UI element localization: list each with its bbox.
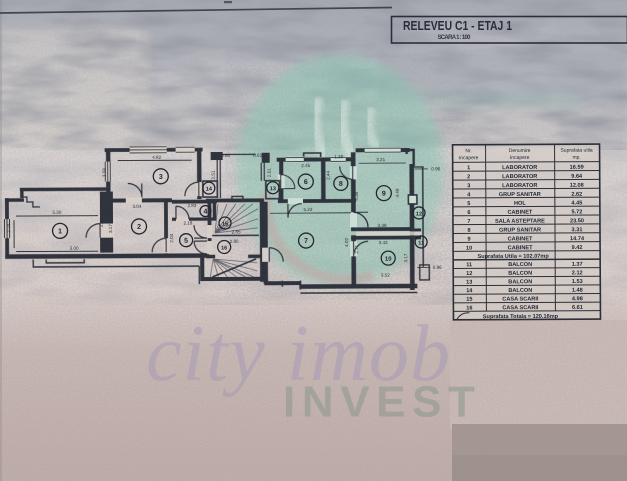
svg-text:3: 3 bbox=[467, 183, 470, 189]
svg-text:2.41: 2.41 bbox=[99, 218, 104, 227]
svg-text:12.08: 12.08 bbox=[570, 183, 584, 189]
svg-text:1.53: 1.53 bbox=[572, 279, 583, 285]
svg-text:4.49: 4.49 bbox=[395, 188, 400, 197]
svg-text:1: 1 bbox=[467, 165, 470, 171]
svg-text:3: 3 bbox=[159, 174, 163, 181]
svg-text:INVEST: INVEST bbox=[283, 378, 481, 427]
svg-text:CASA SCARII: CASA SCARII bbox=[502, 305, 539, 311]
svg-text:3.04: 3.04 bbox=[132, 204, 141, 209]
svg-text:9: 9 bbox=[382, 191, 386, 198]
svg-text:LABORATOR: LABORATOR bbox=[502, 165, 537, 171]
svg-text:Suprafata Totala = 120.16mp: Suprafata Totala = 120.16mp bbox=[483, 314, 559, 320]
svg-text:2.71: 2.71 bbox=[354, 244, 359, 253]
svg-text:6: 6 bbox=[304, 179, 308, 186]
svg-text:15: 15 bbox=[466, 297, 472, 303]
svg-text:Incapere: Incapere bbox=[510, 155, 530, 161]
svg-text:4.02: 4.02 bbox=[344, 237, 349, 246]
svg-text:3.52: 3.52 bbox=[381, 273, 390, 278]
svg-text:3.00: 3.00 bbox=[70, 246, 79, 251]
svg-text:5.22: 5.22 bbox=[303, 207, 312, 212]
svg-text:3.38: 3.38 bbox=[378, 223, 387, 228]
svg-text:16: 16 bbox=[221, 245, 227, 251]
svg-text:3.31: 3.31 bbox=[572, 227, 583, 233]
svg-text:2.45: 2.45 bbox=[301, 163, 310, 168]
svg-text:BALCON: BALCON bbox=[508, 288, 532, 294]
svg-text:2.85: 2.85 bbox=[232, 229, 241, 234]
svg-text:2.18: 2.18 bbox=[184, 221, 193, 226]
svg-text:2.24: 2.24 bbox=[6, 223, 11, 232]
svg-text:14.74: 14.74 bbox=[570, 236, 585, 242]
svg-text:9.64: 9.64 bbox=[571, 174, 583, 180]
svg-text:BALCON: BALCON bbox=[508, 262, 532, 268]
svg-text:16.59: 16.59 bbox=[570, 165, 584, 171]
svg-text:GRUP SANITAR: GRUP SANITAR bbox=[499, 227, 541, 233]
svg-text:2.62: 2.62 bbox=[571, 192, 582, 198]
svg-text:11: 11 bbox=[418, 240, 424, 246]
svg-text:mp.: mp. bbox=[572, 155, 580, 161]
svg-text:0.80: 0.80 bbox=[221, 153, 230, 158]
svg-text:CABINET: CABINET bbox=[508, 245, 533, 251]
svg-text:3.17: 3.17 bbox=[403, 253, 408, 262]
svg-text:6: 6 bbox=[467, 210, 470, 216]
svg-text:13: 13 bbox=[270, 186, 276, 192]
svg-text:SCARA 1 : 100: SCARA 1 : 100 bbox=[438, 35, 472, 41]
svg-text:10: 10 bbox=[466, 246, 472, 252]
svg-text:15: 15 bbox=[222, 221, 228, 227]
svg-text:11: 11 bbox=[466, 262, 472, 268]
svg-text:4.45: 4.45 bbox=[571, 200, 582, 206]
svg-text:4.38: 4.38 bbox=[354, 191, 359, 200]
svg-text:2: 2 bbox=[467, 174, 470, 180]
svg-text:4: 4 bbox=[203, 209, 207, 216]
svg-text:3.58: 3.58 bbox=[102, 168, 107, 177]
svg-text:10: 10 bbox=[385, 257, 392, 263]
svg-text:12: 12 bbox=[466, 271, 472, 277]
svg-text:GRUP SANITAR: GRUP SANITAR bbox=[499, 192, 541, 198]
svg-text:3.21: 3.21 bbox=[376, 157, 385, 162]
svg-text:Incapere: Incapere bbox=[459, 155, 479, 161]
svg-text:12: 12 bbox=[416, 211, 422, 217]
svg-text:0.96: 0.96 bbox=[433, 265, 442, 270]
svg-text:9.42: 9.42 bbox=[572, 245, 583, 251]
svg-text:2.51: 2.51 bbox=[267, 168, 272, 177]
svg-text:HOL: HOL bbox=[514, 201, 526, 207]
svg-text:2.04: 2.04 bbox=[169, 233, 174, 242]
svg-text:1: 1 bbox=[58, 228, 62, 235]
svg-text:2: 2 bbox=[137, 224, 141, 231]
svg-text:7: 7 bbox=[467, 219, 470, 225]
svg-text:7: 7 bbox=[304, 238, 308, 245]
svg-text:SALA ASTEPTARE: SALA ASTEPTARE bbox=[495, 218, 545, 224]
svg-text:14: 14 bbox=[466, 288, 473, 294]
svg-text:13: 13 bbox=[466, 280, 472, 286]
svg-text:14: 14 bbox=[206, 187, 213, 193]
svg-text:BALCON: BALCON bbox=[508, 271, 532, 277]
svg-text:RELEVEU C1 - ETAJ 1: RELEVEU C1 - ETAJ 1 bbox=[403, 19, 512, 33]
svg-text:2.51: 2.51 bbox=[211, 170, 216, 179]
svg-text:5: 5 bbox=[184, 238, 188, 245]
svg-text:0.61: 0.61 bbox=[253, 153, 262, 158]
svg-text:CABINET: CABINET bbox=[507, 210, 532, 216]
svg-text:LABORATOR: LABORATOR bbox=[502, 174, 537, 180]
svg-text:9: 9 bbox=[467, 237, 470, 243]
svg-text:5: 5 bbox=[467, 201, 470, 207]
svg-text:4.98: 4.98 bbox=[572, 296, 583, 302]
svg-text:Suprafata Utila = 102.07mp: Suprafata Utila = 102.07mp bbox=[477, 254, 549, 260]
svg-text:16: 16 bbox=[466, 305, 472, 311]
svg-text:CASA SCARII: CASA SCARII bbox=[502, 296, 539, 302]
svg-text:CABINET: CABINET bbox=[508, 236, 533, 242]
svg-text:1.48: 1.48 bbox=[572, 288, 583, 294]
svg-text:2.90: 2.90 bbox=[230, 239, 239, 244]
svg-text:2.44: 2.44 bbox=[326, 171, 331, 180]
svg-text:2.12: 2.12 bbox=[572, 270, 583, 276]
svg-text:5.30: 5.30 bbox=[52, 210, 61, 215]
svg-text:6.61: 6.61 bbox=[572, 305, 583, 311]
svg-text:1.38: 1.38 bbox=[334, 154, 343, 159]
svg-text:3.43: 3.43 bbox=[379, 240, 388, 245]
svg-text:4.82: 4.82 bbox=[152, 155, 161, 160]
svg-text:3.17: 3.17 bbox=[108, 224, 113, 233]
svg-text:LABORATOR: LABORATOR bbox=[502, 183, 537, 189]
svg-text:0.96: 0.96 bbox=[431, 166, 440, 171]
svg-text:8: 8 bbox=[467, 228, 470, 234]
svg-text:23.50: 23.50 bbox=[570, 218, 584, 224]
svg-text:Suprafata utila: Suprafata utila bbox=[560, 148, 592, 154]
svg-text:Nr.: Nr. bbox=[465, 148, 471, 154]
svg-text:5.72: 5.72 bbox=[571, 209, 582, 215]
svg-text:Denumire: Denumire bbox=[509, 148, 531, 154]
svg-text:8: 8 bbox=[339, 181, 343, 188]
svg-text:1.37: 1.37 bbox=[572, 262, 583, 268]
svg-text:2.83: 2.83 bbox=[187, 203, 196, 208]
svg-text:BALCON: BALCON bbox=[508, 279, 532, 285]
